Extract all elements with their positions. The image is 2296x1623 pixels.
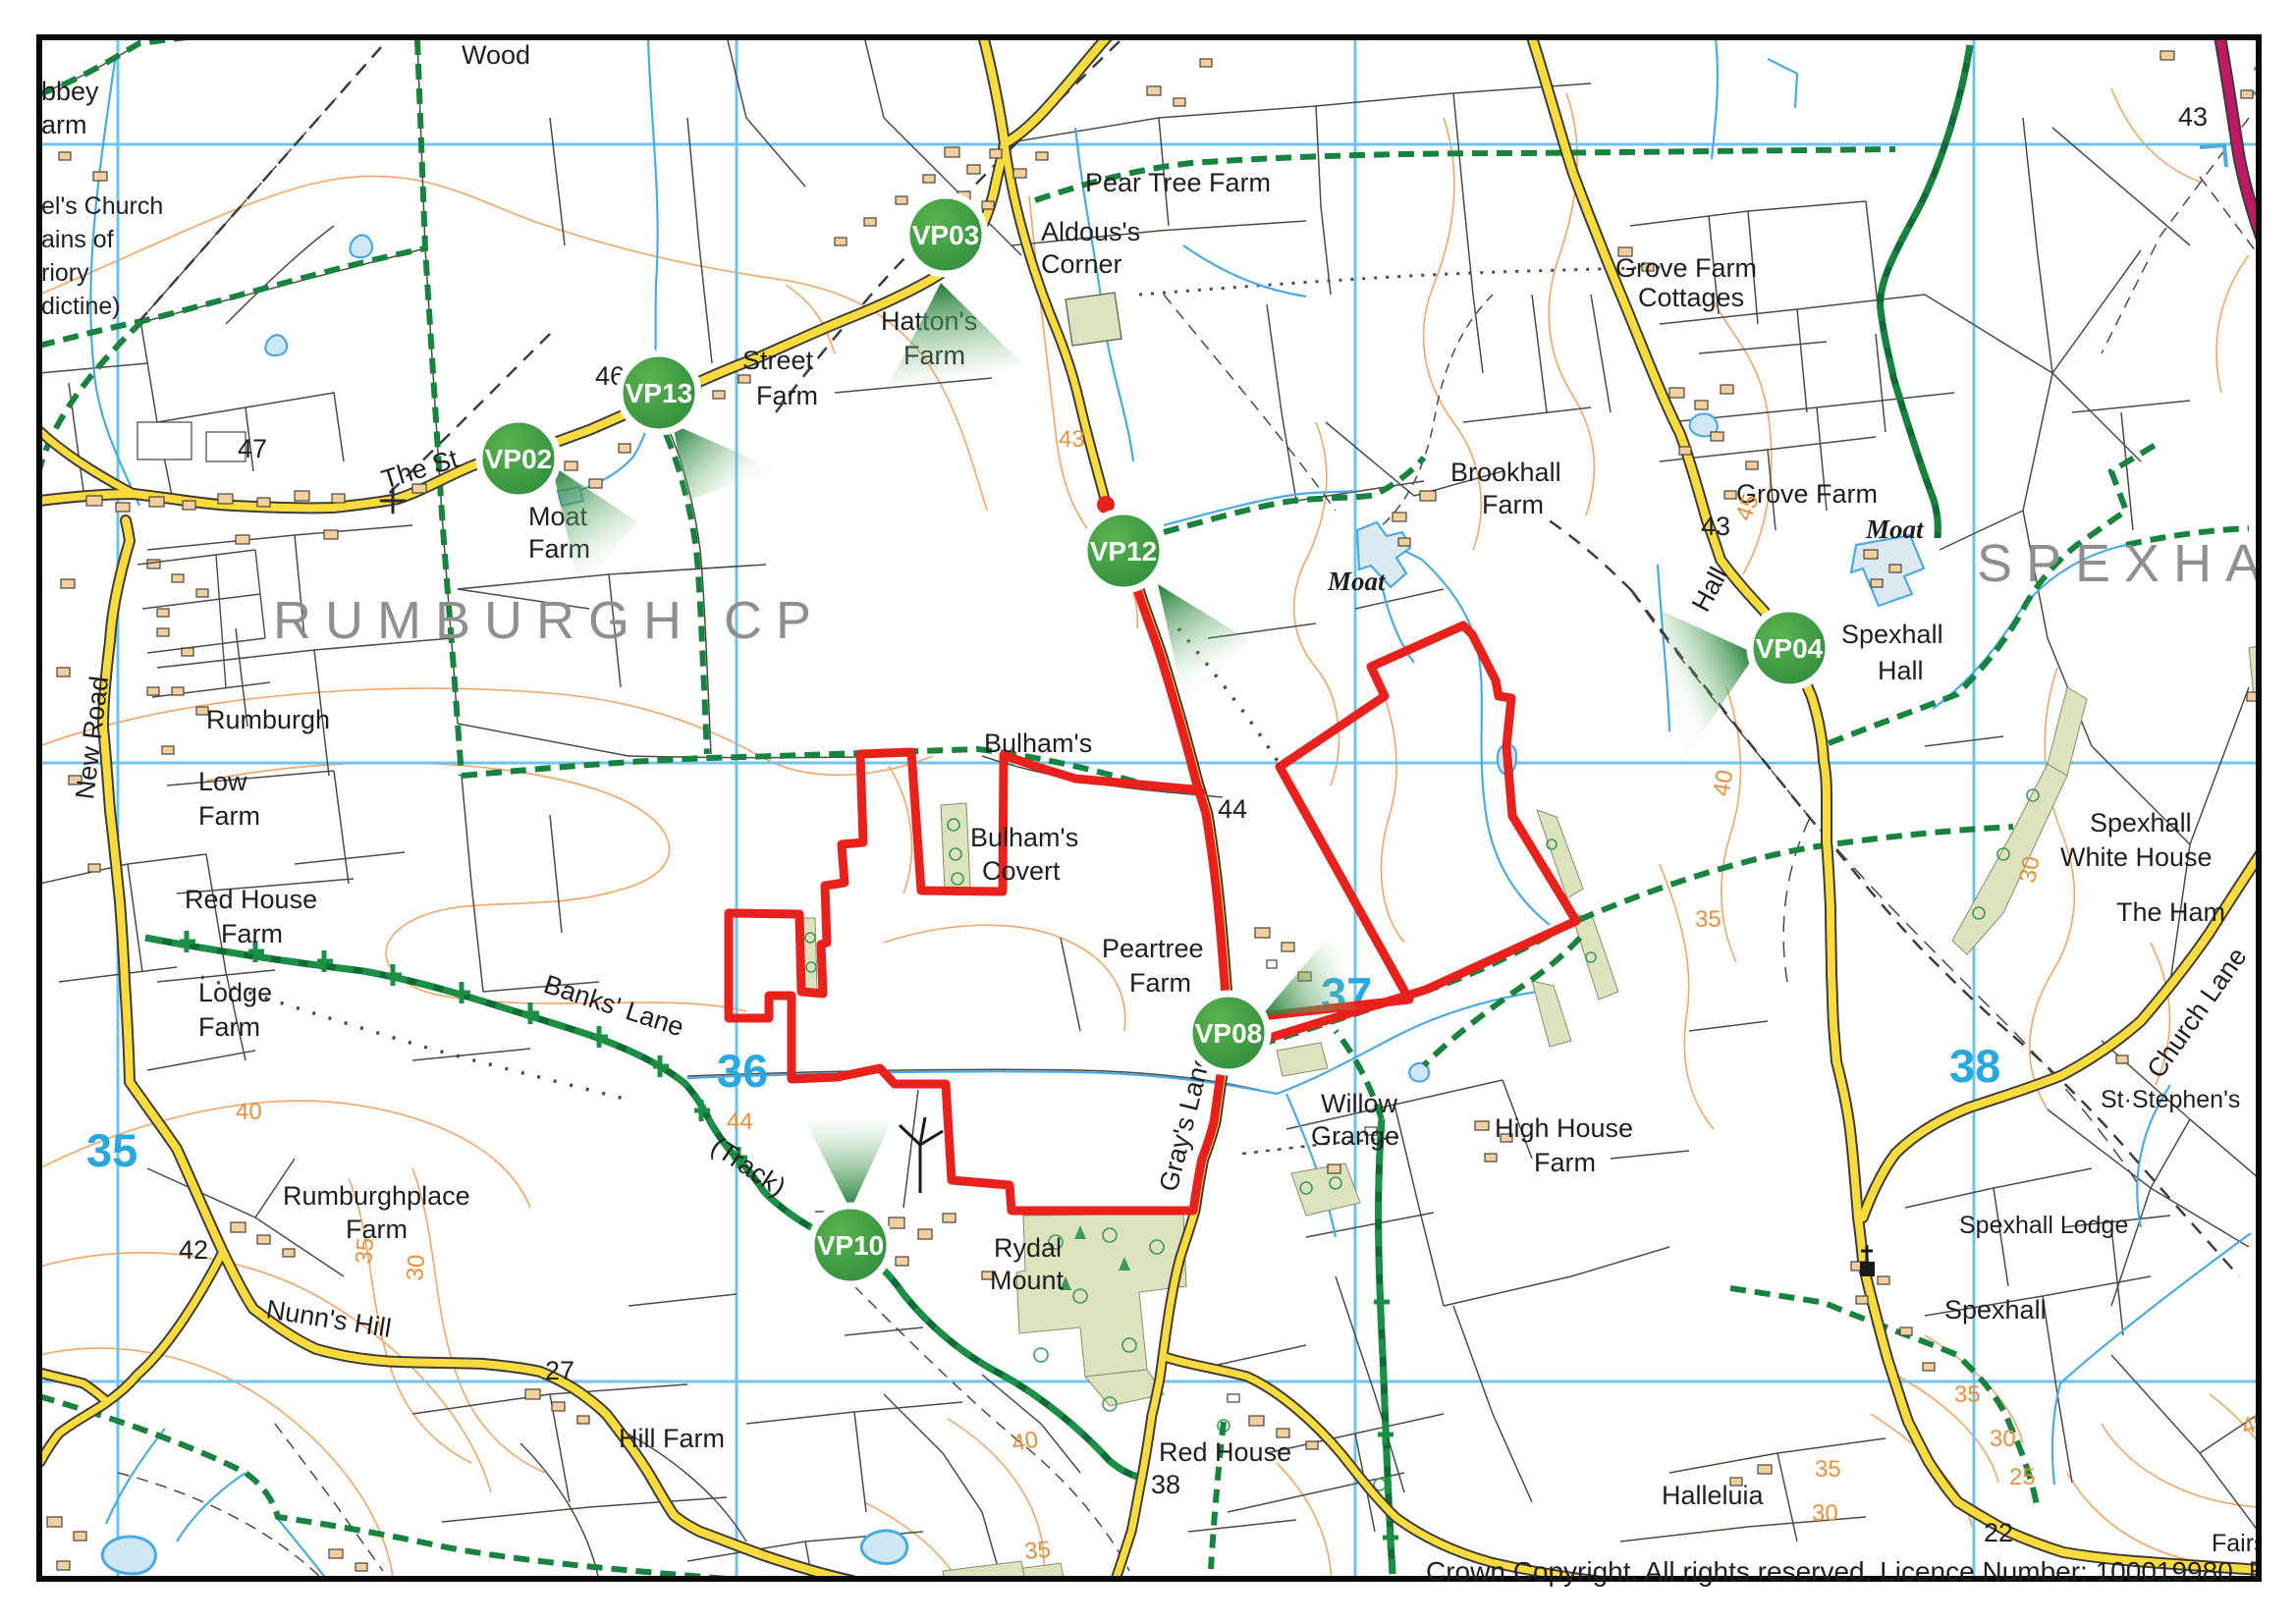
- svg-text:35: 35: [86, 1124, 137, 1176]
- svg-text:Mount: Mount: [990, 1266, 1065, 1295]
- svg-text:arm: arm: [41, 110, 87, 139]
- svg-text:27: 27: [545, 1356, 574, 1385]
- svg-text:RUMBURGH CP: RUMBURGH CP: [273, 591, 825, 650]
- svg-text:Willow: Willow: [1321, 1089, 1397, 1118]
- svg-text:Cottages: Cottages: [1638, 283, 1744, 312]
- svg-text:Aldous's: Aldous's: [1041, 217, 1140, 246]
- svg-text:38: 38: [1151, 1470, 1180, 1499]
- svg-text:Rumburghplace: Rumburghplace: [283, 1181, 470, 1211]
- svg-text:VP04: VP04: [1756, 633, 1824, 664]
- svg-text:Brookhall: Brookhall: [1450, 458, 1561, 487]
- svg-text:dictine): dictine): [41, 293, 121, 320]
- svg-text:Farm: Farm: [198, 1012, 260, 1042]
- svg-text:43: 43: [1059, 426, 1085, 453]
- svg-text:43: 43: [2178, 102, 2208, 132]
- svg-text:Halleluia: Halleluia: [1662, 1481, 1765, 1510]
- svg-text:SPEXHAL: SPEXHAL: [1977, 534, 2296, 593]
- svg-text:40: 40: [1708, 768, 1738, 798]
- svg-text:30: 30: [402, 1254, 430, 1282]
- svg-text:Spexhall: Spexhall: [1944, 1295, 2047, 1325]
- svg-text:25: 25: [2009, 1464, 2036, 1490]
- svg-text:44: 44: [727, 1109, 753, 1135]
- svg-text:Moat: Moat: [1327, 567, 1387, 596]
- svg-text:30: 30: [2014, 854, 2045, 885]
- svg-text:38: 38: [1949, 1040, 2000, 1092]
- svg-text:Grove Farm: Grove Farm: [1615, 253, 1757, 283]
- svg-text:43: 43: [1701, 512, 1730, 541]
- svg-text:35: 35: [1695, 906, 1722, 933]
- svg-text:Farm: Farm: [1129, 968, 1191, 998]
- svg-text:VP13: VP13: [626, 378, 693, 408]
- svg-text:Street: Street: [742, 346, 814, 375]
- svg-text:Rydal: Rydal: [994, 1233, 1062, 1263]
- svg-text:Bulham's: Bulham's: [970, 823, 1078, 852]
- svg-text:VP12: VP12: [1090, 536, 1158, 567]
- svg-text:42: 42: [179, 1235, 208, 1265]
- svg-text:White House: White House: [2060, 842, 2213, 872]
- svg-text:VP10: VP10: [817, 1230, 885, 1261]
- svg-text:Hall: Hall: [1878, 656, 1924, 685]
- svg-text:Red House: Red House: [185, 885, 317, 914]
- svg-text:Covert: Covert: [982, 856, 1061, 886]
- svg-text:VP02: VP02: [485, 444, 553, 474]
- svg-text:Grange: Grange: [1311, 1121, 1399, 1151]
- svg-text:40: 40: [1010, 1427, 1040, 1457]
- svg-text:bbey: bbey: [41, 77, 99, 106]
- svg-text:35: 35: [351, 1237, 379, 1266]
- svg-text:ains of: ains of: [41, 226, 114, 253]
- svg-text:30: 30: [1990, 1426, 2016, 1452]
- svg-text:riory: riory: [41, 259, 89, 287]
- svg-text:Low: Low: [198, 767, 247, 796]
- svg-text:Spexhall: Spexhall: [2090, 808, 2192, 838]
- svg-text:Wood: Wood: [462, 40, 530, 70]
- svg-text:Farm: Farm: [756, 381, 818, 410]
- svg-text:Rumburgh: Rumburgh: [206, 705, 330, 734]
- svg-text:Farm: Farm: [1482, 490, 1544, 519]
- svg-text:Red House: Red House: [1159, 1437, 1291, 1467]
- svg-text:el's Church: el's Church: [41, 192, 163, 220]
- svg-text:Spexhall: Spexhall: [1841, 620, 1943, 649]
- svg-text:Hill Farm: Hill Farm: [619, 1424, 725, 1453]
- svg-text:35: 35: [1815, 1456, 1841, 1483]
- svg-text:30: 30: [1812, 1500, 1838, 1527]
- svg-text:Farm: Farm: [221, 919, 283, 948]
- svg-text:40: 40: [236, 1099, 262, 1125]
- svg-text:Spexhall Lodge: Spexhall Lodge: [1959, 1212, 2128, 1239]
- svg-text:Farm: Farm: [1534, 1148, 1596, 1177]
- svg-text:Lodge: Lodge: [198, 978, 272, 1007]
- svg-text:VP03: VP03: [912, 220, 980, 250]
- svg-text:22: 22: [1984, 1518, 2013, 1547]
- svg-text:35: 35: [1954, 1381, 1981, 1408]
- svg-text:The Ham: The Ham: [2116, 897, 2225, 927]
- svg-text:Bulham's: Bulham's: [984, 729, 1092, 758]
- svg-text:Corner: Corner: [1041, 249, 1122, 279]
- svg-text:Peartree: Peartree: [1102, 934, 1204, 963]
- svg-text:Moat: Moat: [1865, 514, 1925, 544]
- svg-text:36: 36: [717, 1045, 768, 1097]
- svg-text:Pear Tree Farm: Pear Tree Farm: [1085, 168, 1271, 197]
- svg-text:47: 47: [238, 434, 267, 463]
- svg-text:35: 35: [1023, 1537, 1052, 1565]
- svg-text:Crown Copyright. All rights re: Crown Copyright. All rights reserved. Li…: [1426, 1556, 2233, 1587]
- svg-text:Farm: Farm: [198, 801, 260, 831]
- svg-text:VP08: VP08: [1195, 1018, 1263, 1049]
- svg-text:St·Stephen's: St·Stephen's: [2101, 1086, 2240, 1113]
- svg-text:44: 44: [1218, 794, 1247, 824]
- svg-text:High House: High House: [1495, 1113, 1633, 1143]
